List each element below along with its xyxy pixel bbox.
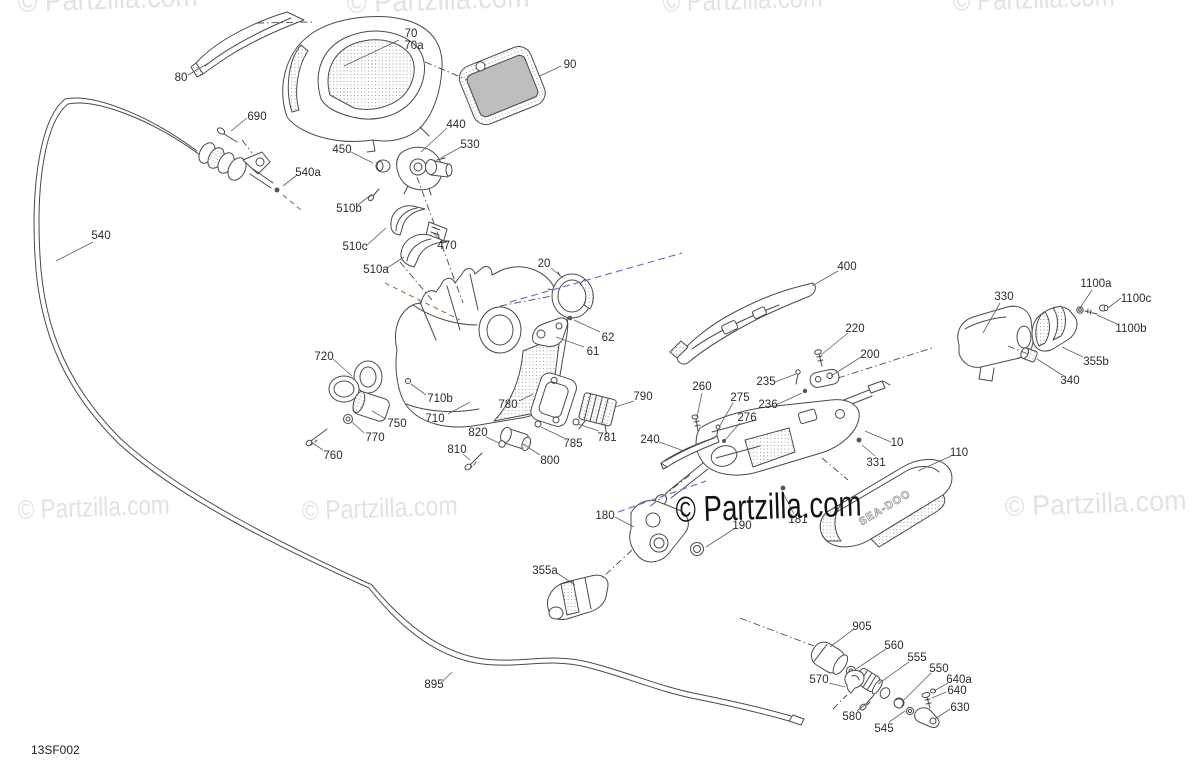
- leader-line-20: [551, 268, 563, 278]
- part-label-235: 235: [756, 376, 775, 388]
- part-690-lock-assembly: [196, 127, 280, 193]
- part-label-540a: 540a: [295, 167, 321, 179]
- leader-line-510a: [387, 257, 404, 268]
- part-440-bracket: [376, 147, 452, 195]
- leader-line-190: [706, 529, 734, 547]
- leader-line-560: [856, 649, 886, 669]
- watermark-light: © Partzilla.com: [301, 491, 458, 526]
- part-label-820: 820: [468, 427, 487, 439]
- part-label-20: 20: [538, 258, 551, 270]
- part-label-510a: 510a: [363, 264, 389, 276]
- part-label-470: 470: [437, 240, 456, 252]
- part-label-545: 545: [874, 723, 893, 735]
- guide-line-align: [242, 140, 252, 153]
- part-355a-boot: [548, 575, 609, 619]
- watermark-light: © Partzilla.com: [662, 0, 823, 19]
- part-label-90: 90: [564, 59, 577, 71]
- leader-line-630: [935, 709, 950, 719]
- part-label-331: 331: [866, 457, 885, 469]
- guide-line-align: [833, 695, 847, 709]
- leader-line-530: [441, 147, 461, 158]
- part-label-510b: 510b: [336, 203, 362, 215]
- leader-line-340: [1037, 359, 1062, 375]
- part-label-781: 781: [597, 432, 616, 444]
- leader-line-1100b: [1097, 315, 1117, 324]
- leader-line-555: [878, 662, 909, 684]
- guide-line-orange: [283, 195, 301, 210]
- guide-line-align: [822, 458, 848, 480]
- part-label-710: 710: [425, 413, 444, 425]
- guide-line-align: [740, 618, 814, 646]
- part-label-750: 750: [387, 418, 406, 430]
- part-label-1100b: 1100b: [1115, 323, 1146, 335]
- part-label-110: 110: [950, 447, 968, 459]
- leader-line-450: [351, 152, 373, 163]
- part-label-555: 555: [907, 652, 926, 664]
- watermark-light: © Partzilla.com: [1004, 485, 1187, 522]
- part-label-236: 236: [758, 399, 777, 411]
- part-label-760: 760: [323, 450, 342, 462]
- part-70-console: [283, 17, 442, 152]
- part-label-800: 800: [540, 455, 559, 467]
- part-510-clamps: [367, 189, 447, 267]
- part-label-1100a: 1100a: [1080, 278, 1112, 290]
- part-label-570: 570: [809, 674, 828, 686]
- leader-line-760: [311, 442, 323, 450]
- leader-line-235: [775, 374, 796, 382]
- leader-line-720: [333, 359, 352, 376]
- part-label-400: 400: [837, 261, 856, 273]
- leader-line-10: [865, 431, 891, 442]
- part-label-355b: 355b: [1083, 356, 1109, 368]
- leader-line-820: [486, 437, 499, 443]
- leader-line-545: [889, 711, 905, 722]
- leader-line-570: [829, 683, 845, 687]
- leader-line-781: [578, 424, 599, 431]
- leader-line-690: [231, 118, 247, 131]
- part-label-260: 260: [692, 381, 711, 393]
- part-330-cover: [958, 306, 1033, 381]
- part-label-580: 580: [842, 711, 861, 723]
- leader-line-1100c: [1108, 298, 1121, 308]
- part-label-770: 770: [365, 432, 384, 444]
- part-label-780: 780: [498, 399, 517, 411]
- part-label-810: 810: [447, 444, 466, 456]
- guide-line-align: [601, 550, 632, 579]
- parts-diagram-page: © Partzilla.com© Partzilla.com© Partzill…: [0, 0, 1200, 777]
- part-label-80: 80: [175, 72, 188, 84]
- leader-line-785: [541, 427, 564, 438]
- part-label-690: 690: [247, 111, 266, 123]
- part-label-70: 70: [405, 28, 418, 40]
- watermark-light: © Partzilla.com: [17, 0, 198, 19]
- watermark-dark: © Partzilla.com: [675, 483, 862, 530]
- parts-diagram: © Partzilla.com© Partzilla.com© Partzill…: [0, 0, 1200, 777]
- leader-line-260: [697, 393, 702, 417]
- part-label-440: 440: [446, 119, 465, 131]
- part-label-340: 340: [1060, 375, 1079, 387]
- part-label-560: 560: [884, 640, 903, 652]
- leader-line-331: [862, 445, 875, 456]
- leader-line-540: [56, 242, 93, 261]
- part-label-720: 720: [314, 351, 333, 363]
- part-label-510c: 510c: [343, 241, 368, 253]
- part-label-62: 62: [602, 332, 615, 344]
- part-label-540: 540: [91, 230, 110, 242]
- part-label-70a: 70a: [404, 40, 424, 52]
- leader-line-90: [540, 66, 561, 76]
- watermark-light: © Partzilla.com: [952, 0, 1115, 18]
- part-label-276: 276: [737, 412, 756, 424]
- leader-line-905: [830, 629, 854, 647]
- leader-line-400: [812, 271, 838, 286]
- leader-line-220: [821, 333, 848, 355]
- part-label-240: 240: [640, 434, 659, 446]
- watermark-light: © Partzilla.com: [17, 490, 170, 525]
- part-label-895: 895: [424, 679, 443, 691]
- leader-line-770: [351, 421, 364, 433]
- part-label-61: 61: [587, 346, 600, 358]
- part-label-905: 905: [852, 621, 871, 633]
- part-355b-boot: [1019, 305, 1107, 362]
- leader-line-240: [659, 442, 684, 451]
- leader-line-355b: [1062, 347, 1083, 357]
- leader-line-1100a: [1080, 290, 1092, 308]
- part-label-200: 200: [860, 349, 879, 361]
- part-label-10: 10: [891, 437, 904, 449]
- part-label-220: 220: [845, 323, 864, 335]
- part-label-630: 630: [950, 702, 969, 714]
- part-label-275: 275: [730, 392, 749, 404]
- leader-line-510c: [366, 228, 386, 246]
- leader-line-790: [615, 401, 634, 407]
- diagram-code: 13SF002: [31, 743, 80, 757]
- part-label-450: 450: [332, 144, 351, 156]
- leader-line-62: [574, 320, 600, 332]
- part-label-790: 790: [633, 391, 652, 403]
- part-400-handlebar-cover: [670, 283, 815, 364]
- part-90-gauge-lens: [455, 43, 549, 129]
- part-label-710b: 710b: [427, 393, 453, 405]
- part-label-640: 640: [947, 685, 966, 697]
- leader-line-200: [831, 357, 861, 376]
- part-label-355a: 355a: [532, 565, 558, 577]
- part-label-1100c: 1100c: [1121, 293, 1152, 305]
- part-label-785: 785: [563, 438, 582, 450]
- part-label-180: 180: [595, 510, 614, 522]
- part-label-330: 330: [994, 291, 1013, 303]
- part-label-530: 530: [460, 139, 479, 151]
